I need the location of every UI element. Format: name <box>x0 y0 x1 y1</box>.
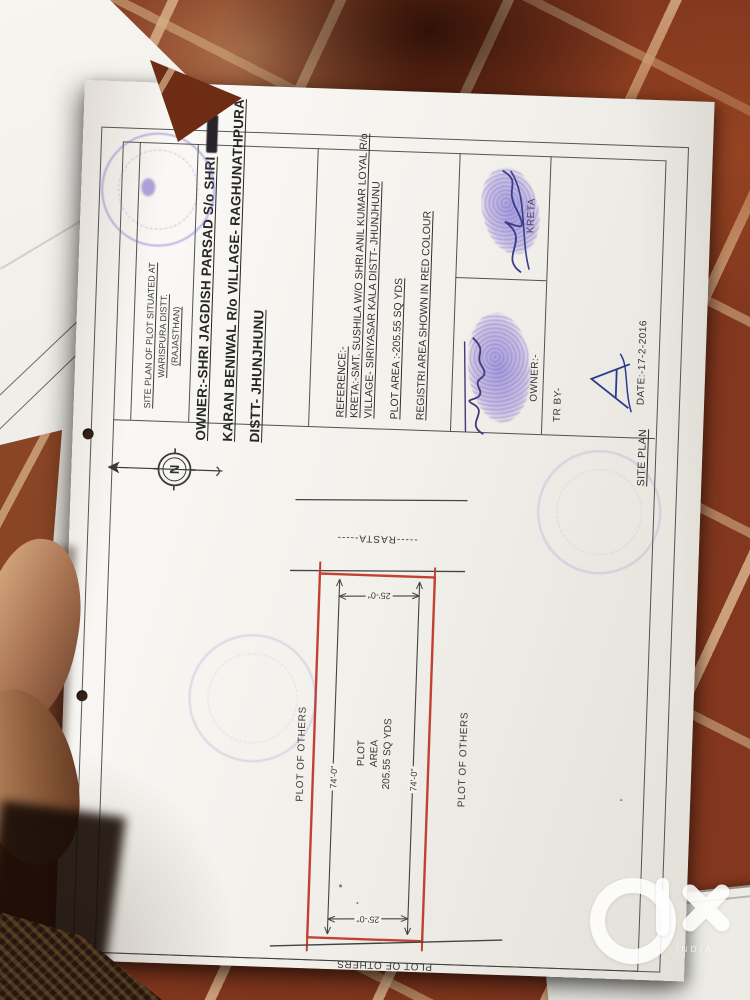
tr-by-label: TR BY- <box>552 387 564 422</box>
owner-block: OWNER:-SHRI JAGDISH PARSAD S/o SHRI KARA… <box>187 98 280 443</box>
olx-india-text: INDIA <box>676 944 714 954</box>
tr-by-signature <box>582 345 641 419</box>
plot-area-label: PLOT AREA 205.55 SQ YDS <box>354 717 395 789</box>
area-line: 205.55 SQ YDS <box>380 718 395 789</box>
owner-signature <box>455 333 506 439</box>
photo-stage: SITE PLAN OF PLOT SITUATED AT WARISPURA … <box>0 0 750 1000</box>
kreta-signature <box>489 164 546 278</box>
reference-block: REFERENCE:- KRETA:-SMT. SUSHILA W/O SHRI… <box>333 133 437 421</box>
site-plan-document: SITE PLAN OF PLOT SITUATED AT WARISPURA … <box>54 80 714 981</box>
width-dimension-top: 25'-0" <box>366 590 393 601</box>
olx-x-glyph <box>674 876 738 943</box>
olx-l-glyph <box>656 878 669 936</box>
width-dimension-bottom: 25'-0" <box>354 914 381 925</box>
length-dimension-right: 74'-0" <box>408 766 419 793</box>
title-block: SITE PLAN OF PLOT SITUATED AT WARISPURA … <box>141 262 185 409</box>
length-dimension-left: 74'-0" <box>328 763 339 790</box>
north-compass-icon: N <box>103 443 227 500</box>
compass-letter: N <box>167 464 182 474</box>
